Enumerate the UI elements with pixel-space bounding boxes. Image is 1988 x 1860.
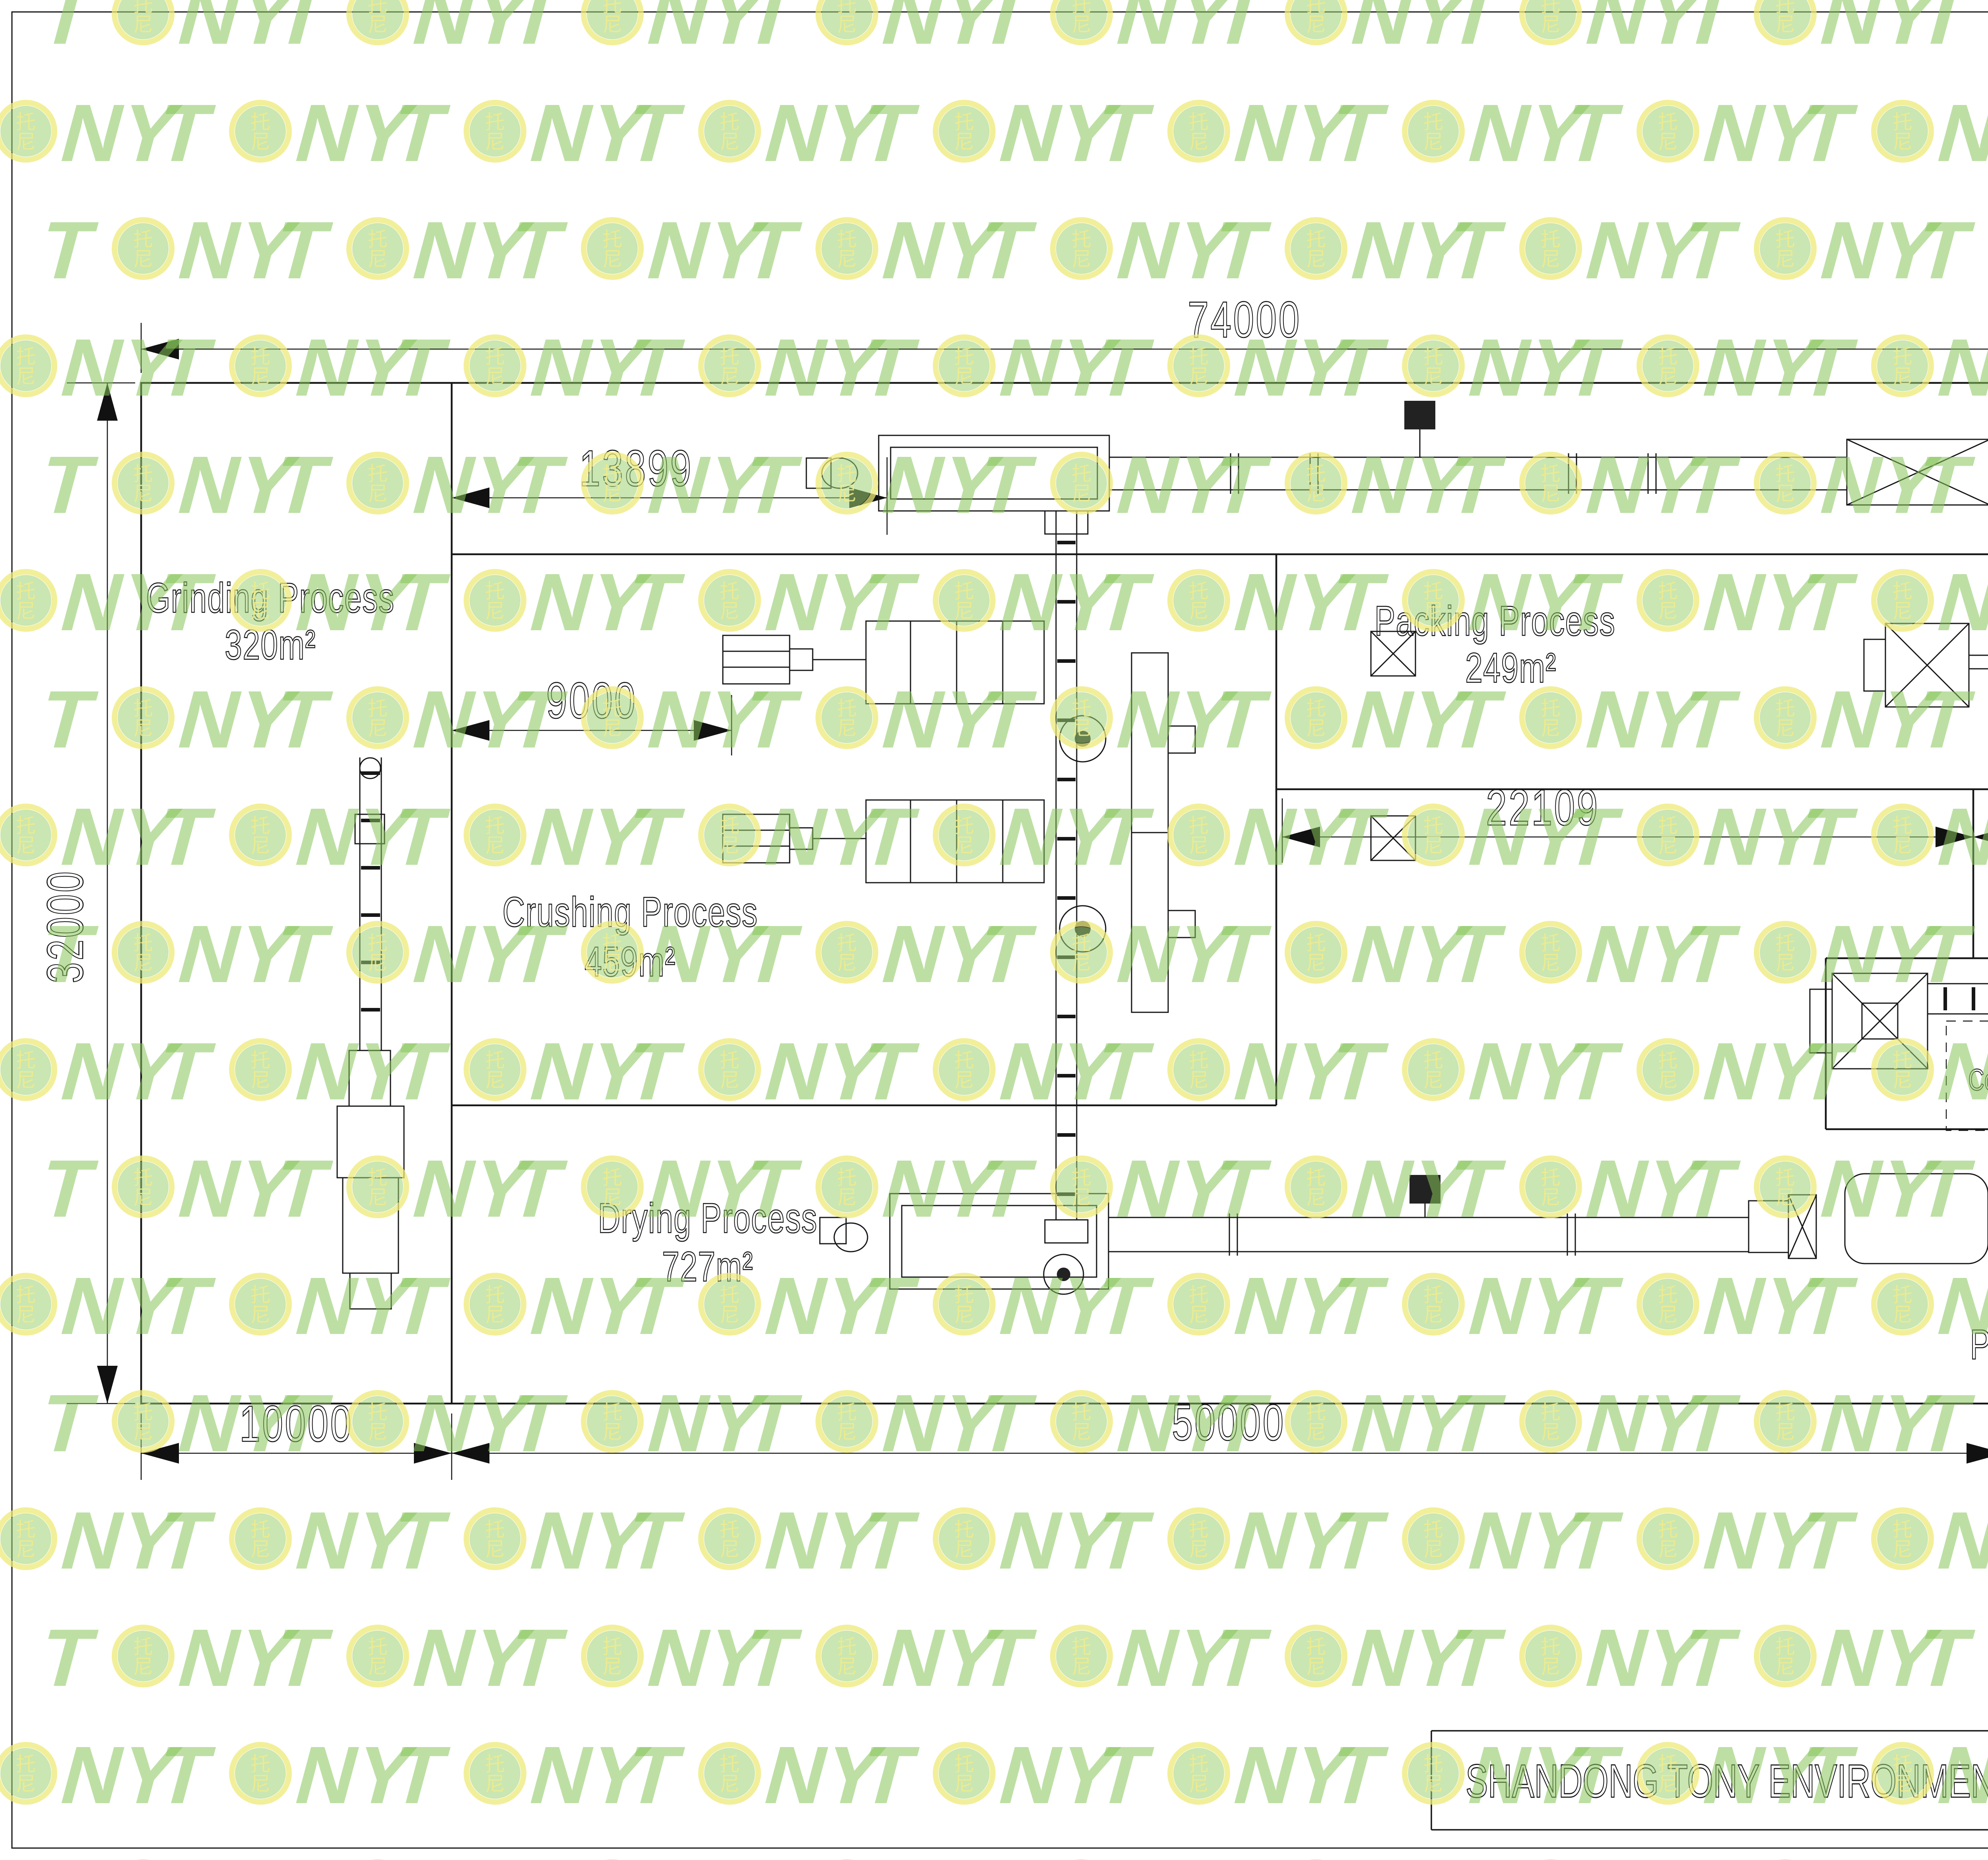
packing-equipment xyxy=(1864,623,1988,789)
floorplan-drawing: SHANDONG TONY ENVIRONMENTAL PROTECTION S… xyxy=(0,0,1988,1860)
label-crushing-area: 459m² xyxy=(584,938,676,985)
fan-top-left xyxy=(822,458,858,488)
label-grinding-area: 320m² xyxy=(225,621,316,668)
dryer-line-top xyxy=(806,404,1988,557)
dim-13899: 13899 xyxy=(579,440,693,497)
crushing-bins xyxy=(1132,631,1415,1012)
dimension-labels: 74000 13899 9000 22109 7891 10000 50000 … xyxy=(37,291,1988,1458)
label-pelletizing: Pelletizing Process xyxy=(1970,1321,1988,1368)
process-area-labels: Grinding Process 320m² Crushing Process … xyxy=(146,575,1988,1412)
fan-bottom-left xyxy=(834,1223,868,1252)
dim-74000: 74000 xyxy=(1188,291,1301,348)
pelletizing-mill xyxy=(1788,1163,1988,1290)
motor-top xyxy=(1404,401,1435,429)
sheet-border xyxy=(12,12,1988,1848)
dim-50000: 50000 xyxy=(1172,1394,1285,1451)
dimension-lines xyxy=(67,323,1988,1480)
dim-32000: 32000 xyxy=(37,870,93,983)
dim-22109: 22109 xyxy=(1486,779,1600,836)
label-grinding: Grinding Process xyxy=(146,575,394,621)
label-crushing: Crushing Process xyxy=(503,889,758,936)
bucket-elevator xyxy=(1045,511,1088,1243)
crusher-line-2 xyxy=(723,800,1044,883)
title-company-name: SHANDONG TONY ENVIRONMENTAL PROTECTION S… xyxy=(1466,1755,1988,1808)
label-drying: Drying Process xyxy=(598,1195,817,1242)
dryer-line-bottom xyxy=(820,1194,1788,1289)
dim-9000: 9000 xyxy=(546,672,637,729)
crusher-line-1 xyxy=(723,621,1044,704)
mill-drum xyxy=(1845,1174,1988,1264)
label-packing: Packing Process xyxy=(1375,598,1615,645)
grinding-conveyor-head xyxy=(360,758,381,779)
motor-bottom xyxy=(1409,1175,1441,1204)
blower-bottom-hub xyxy=(1057,1268,1070,1281)
grinding-machine xyxy=(337,757,404,1309)
cooling-equipment xyxy=(1810,973,1988,1369)
cad-sheet: SHANDONG TONY ENVIRONMENTAL PROTECTION S… xyxy=(0,0,1988,1860)
dimension-arrowheads xyxy=(97,339,1988,1464)
label-cooling: Cooling Process xyxy=(1968,1063,1988,1097)
label-drying-area: 727m² xyxy=(662,1243,753,1290)
building-walls xyxy=(141,383,1988,1404)
label-packing-area: 249m² xyxy=(1465,645,1557,691)
dim-10000: 10000 xyxy=(239,1395,353,1452)
